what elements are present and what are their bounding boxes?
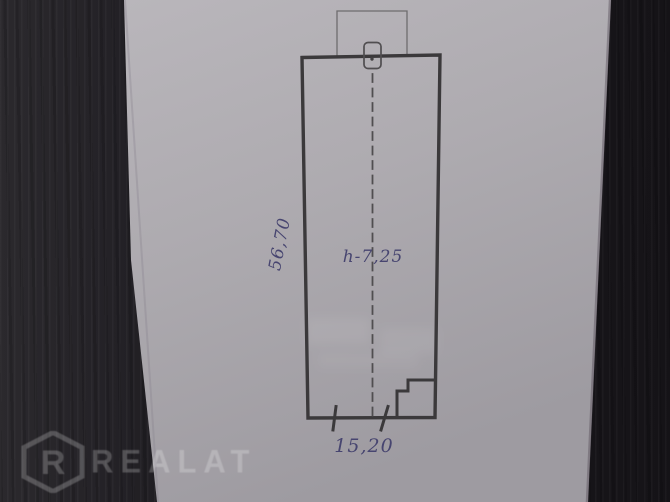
height-label: h-7,25 xyxy=(343,247,404,267)
entrance-marker-dot xyxy=(370,57,373,60)
width-label: 15,20 xyxy=(334,435,393,457)
photo-of-floor-plan: 56,70 h-7,25 15,20 R REALAT xyxy=(0,0,670,502)
scene: 56,70 h-7,25 15,20 xyxy=(0,0,670,502)
